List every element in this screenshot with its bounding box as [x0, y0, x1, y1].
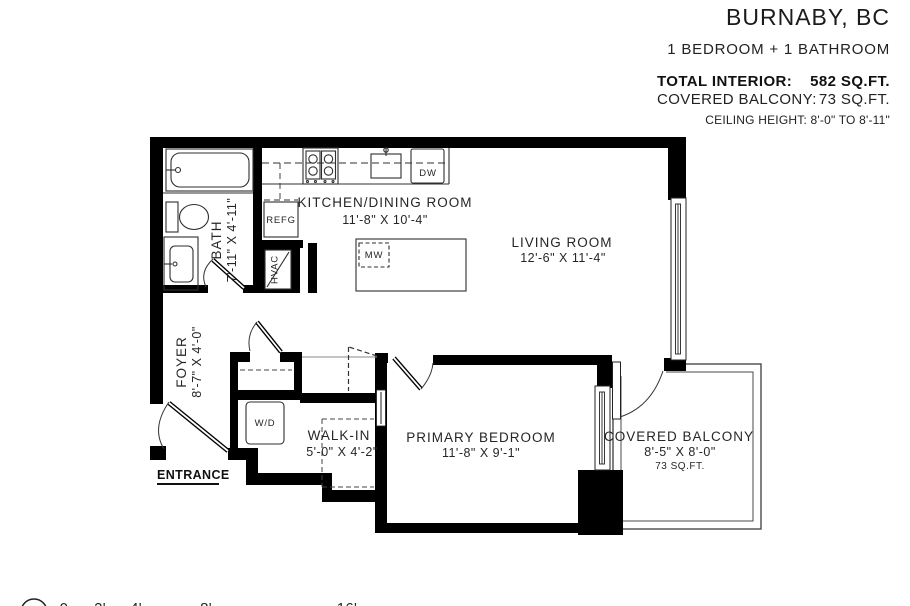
room-label-walkin: WALK-IN [308, 428, 371, 443]
room-dims-walkin: 5'-0" X 4'-2" [306, 445, 378, 459]
room-label-foyer: FOYER [174, 336, 189, 388]
room-label-bedroom: PRIMARY BEDROOM [406, 430, 556, 445]
scale-bar: 0 2' 4' 8' 16' [21, 599, 357, 606]
room-dims-living: 12'-6" X 11'-4" [520, 251, 606, 265]
closet-door [249, 322, 281, 352]
room-area-balcony: 73 SQ.FT. [655, 461, 705, 472]
kitchen-island [356, 239, 466, 291]
bathroom-sink-icon [164, 237, 198, 290]
bedroom-window [595, 386, 610, 470]
refrigerator-label: REFG [266, 215, 296, 226]
stove-icon [303, 148, 338, 184]
scale-label-8: 8' [200, 600, 212, 606]
scale-compass-icon [21, 599, 47, 606]
bathtub-icon [163, 149, 253, 193]
room-dims-bath: 7'-11" X 4'-11" [225, 198, 239, 283]
dishwasher-label: DW [419, 168, 436, 179]
toilet-icon [166, 202, 209, 232]
room-label-kitchen: KITCHEN/DINING ROOM [297, 195, 472, 210]
scale-label-2: 2' [94, 600, 106, 606]
floorplan-page: BURNABY, BC 1 BEDROOM + 1 BATHROOM TOTAL… [0, 0, 910, 606]
room-label-living: LIVING ROOM [511, 235, 612, 250]
entrance-door [159, 402, 228, 451]
scale-label-16: 16' [337, 600, 357, 606]
room-dims-bedroom: 11'-8" X 9'-1" [442, 446, 520, 460]
hvac-label: HVAC [270, 255, 281, 284]
room-dims-balcony: 8'-5" X 8'-0" [644, 445, 716, 459]
scale-label-4: 4' [130, 600, 142, 606]
entrance-label: ENTRANCE [157, 468, 230, 482]
pocket-door [377, 390, 386, 426]
washer-dryer-label: W/D [255, 418, 276, 429]
balcony-outline [608, 359, 761, 529]
floorplan-drawing: KITCHEN/DINING ROOM 11'-8" X 10'-4" LIVI… [0, 0, 910, 606]
room-label-bath: BATH [209, 220, 224, 259]
room-dims-foyer: 8'-7" X 4'-0" [190, 326, 204, 398]
room-dims-kitchen: 11'-8" X 10'-4" [342, 213, 428, 227]
microwave-label: MW [365, 250, 383, 261]
walkin-door [302, 347, 377, 391]
bedroom-door [394, 358, 433, 389]
room-label-balcony: COVERED BALCONY [604, 429, 754, 444]
entrance-callout: ENTRANCE [157, 468, 230, 485]
scale-label-0: 0 [60, 600, 69, 606]
living-room-window [671, 198, 686, 360]
